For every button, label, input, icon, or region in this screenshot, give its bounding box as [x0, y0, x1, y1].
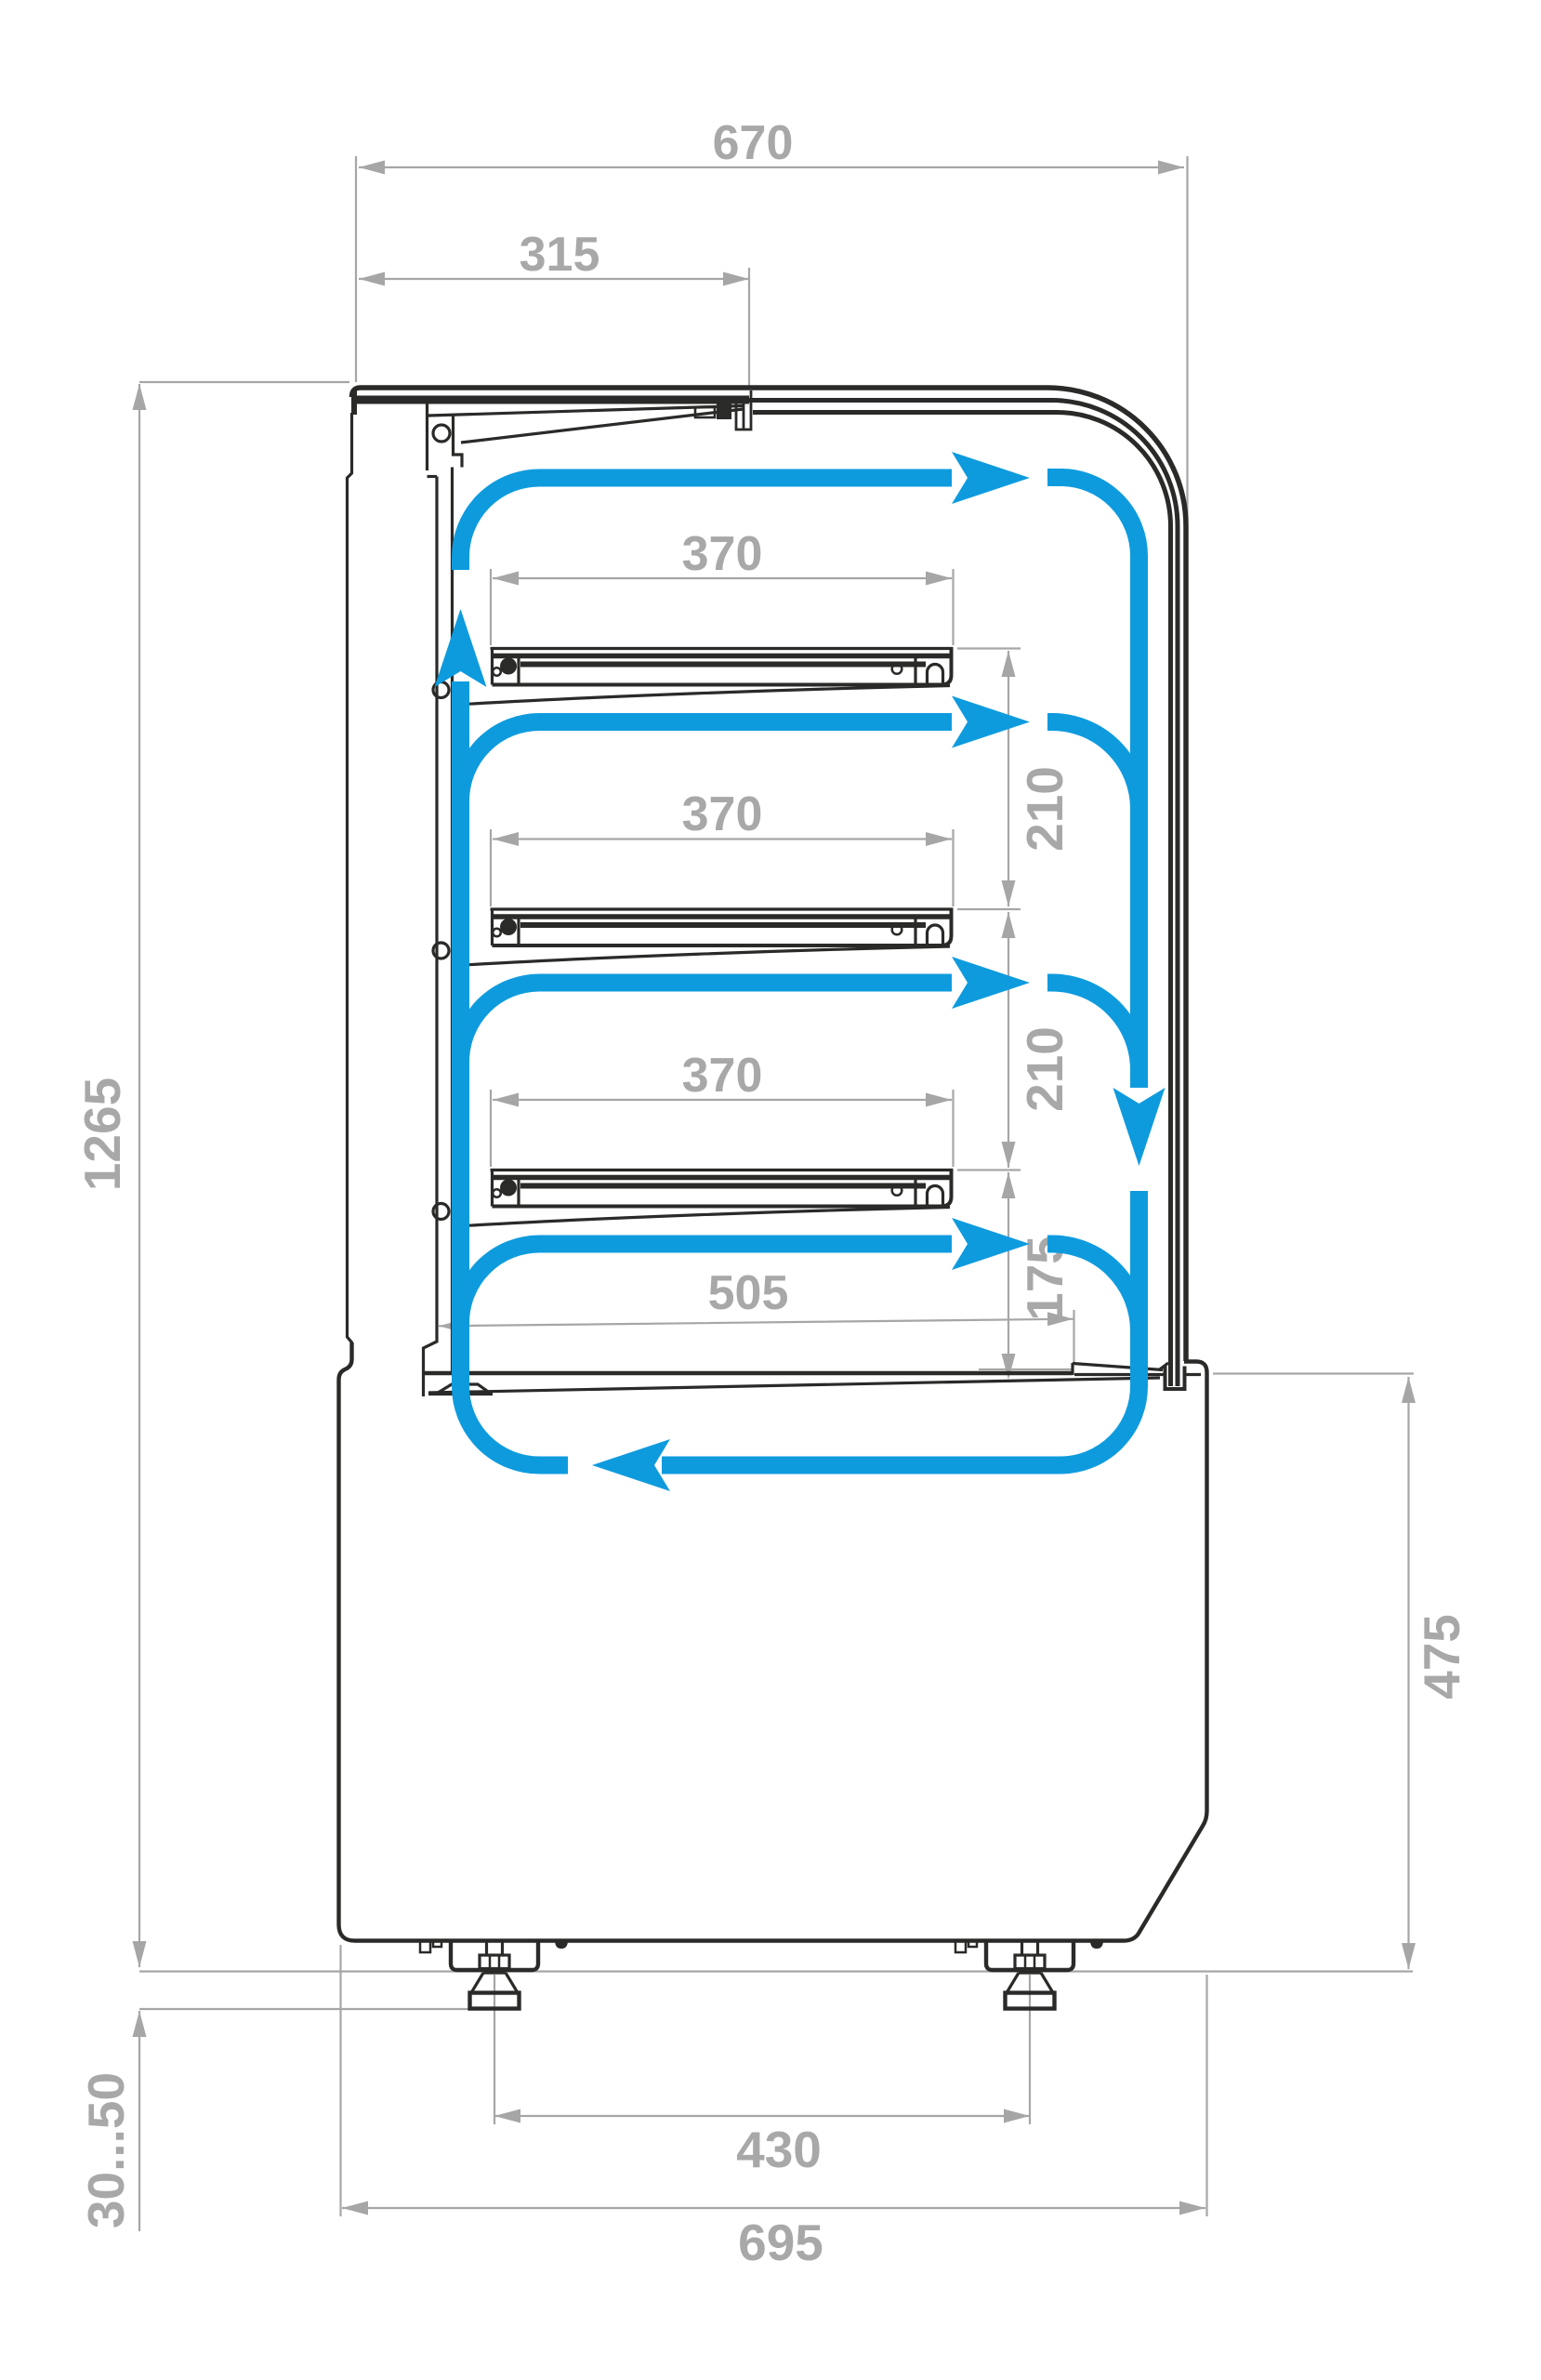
svg-text:670: 670 — [713, 116, 794, 170]
svg-text:475: 475 — [1413, 1614, 1470, 1699]
svg-text:370: 370 — [682, 527, 763, 581]
svg-text:315: 315 — [520, 228, 600, 282]
svg-text:210: 210 — [1016, 1026, 1073, 1112]
svg-text:1265: 1265 — [73, 1078, 131, 1191]
svg-text:370: 370 — [682, 787, 763, 841]
svg-text:30...50: 30...50 — [77, 2072, 135, 2228]
svg-text:695: 695 — [738, 2214, 823, 2271]
svg-text:430: 430 — [736, 2121, 822, 2178]
svg-text:505: 505 — [708, 1266, 789, 1320]
svg-text:370: 370 — [682, 1049, 763, 1103]
svg-text:210: 210 — [1016, 766, 1073, 852]
